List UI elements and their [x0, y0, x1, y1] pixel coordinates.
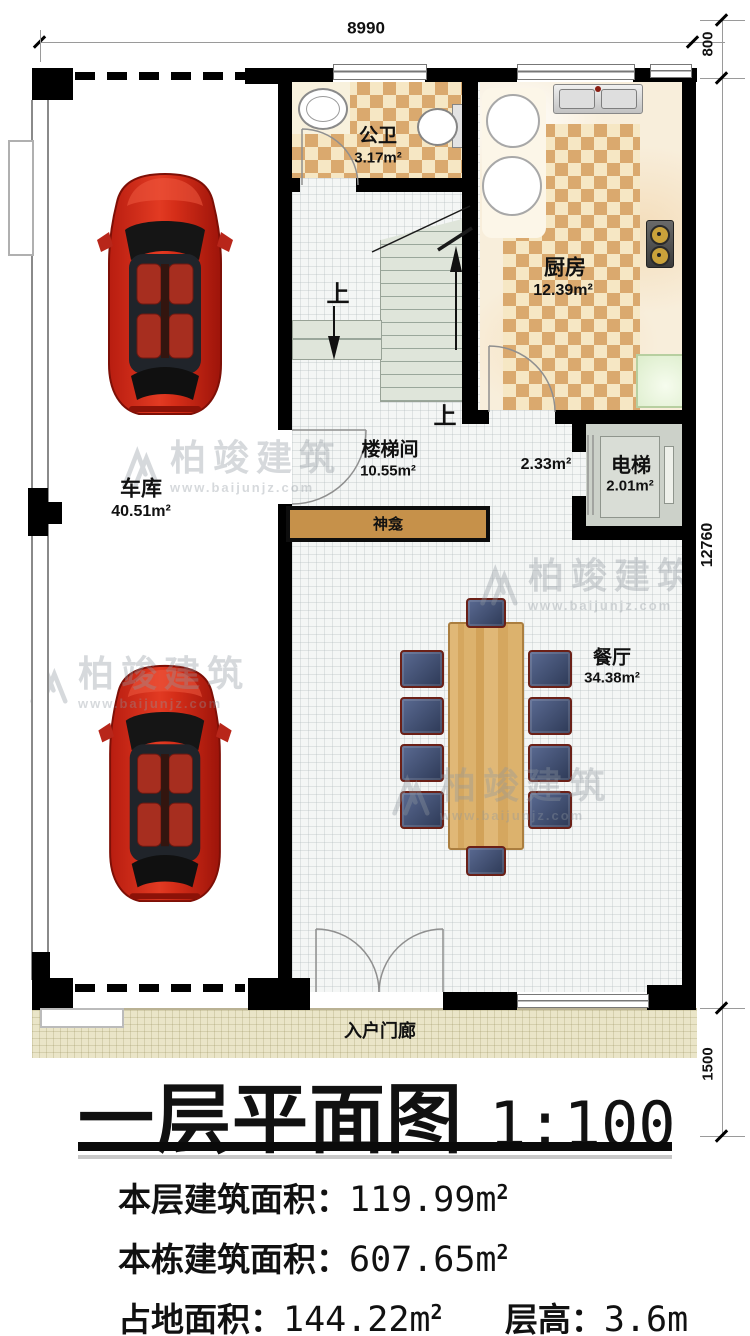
stat-label: 占地面积：	[118, 1301, 283, 1336]
stat-value: 144.22m	[283, 1300, 431, 1336]
stat-label: 本层建筑面积：	[118, 1181, 349, 1218]
dimension-line-top	[40, 42, 725, 43]
title-underline-shadow	[78, 1155, 672, 1159]
stat-label: 本栋建筑面积：	[118, 1241, 349, 1278]
kitchen-round-basin-2	[482, 156, 542, 216]
dining-chair	[528, 650, 572, 688]
stove-burner-1	[650, 225, 670, 245]
wall	[647, 985, 696, 1010]
room-area-elevator: 2.01m²	[606, 479, 654, 494]
room-label-stairwell: 楼梯间	[361, 441, 418, 460]
entry-step	[40, 1008, 124, 1028]
stair-up-label: 上	[434, 405, 457, 428]
sink-basin-left	[559, 89, 595, 109]
bathroom-sink	[298, 88, 348, 130]
watermark-url: www.baijunjz.com	[170, 480, 342, 495]
shrine-cabinet: 神龛	[286, 506, 490, 542]
room-area-garage: 40.51m²	[111, 504, 171, 520]
title-underline	[78, 1142, 672, 1151]
stair-up-label: 上	[327, 283, 350, 306]
watermark: 柏竣建筑 www.baijunjz.com	[28, 656, 250, 711]
window	[650, 64, 692, 78]
dining-chair	[400, 650, 444, 688]
garage-door-dashed	[75, 72, 245, 80]
toilet-bowl	[417, 108, 458, 146]
room-label-elevator: 电梯	[611, 456, 651, 476]
fridge	[636, 354, 686, 408]
watermark-brand: 柏竣建筑	[528, 558, 700, 594]
page-title: 一层平面图	[78, 1058, 463, 1168]
wall	[278, 504, 292, 980]
window	[517, 64, 635, 80]
stair-landing	[292, 320, 382, 360]
stat-sup: 2	[431, 1300, 443, 1324]
wall	[443, 992, 517, 1010]
watermark: 柏竣建筑 www.baijunjz.com	[478, 558, 700, 613]
kitchen-round-basin-1	[486, 94, 540, 148]
dimension-right-top: 800	[700, 31, 717, 56]
wall	[462, 68, 478, 424]
stat-floor-area: 本层建筑面积：119.99m2	[118, 1166, 688, 1226]
car-top-view	[95, 168, 235, 418]
kitchen-double-sink	[553, 84, 643, 114]
stove-burner-2	[650, 246, 670, 266]
wall	[356, 178, 476, 192]
room-label-porch: 入户门廊	[344, 1022, 416, 1040]
wall	[462, 410, 489, 424]
room-area-hallway: 2.33m²	[521, 457, 572, 473]
watermark-brand: 柏竣建筑	[440, 768, 612, 804]
dimension-width: 8990	[347, 20, 385, 37]
window	[333, 64, 427, 80]
sink-basin-right	[601, 89, 637, 109]
watermark-brand: 柏竣建筑	[170, 440, 342, 476]
room-label-kitchen: 厨房	[544, 258, 586, 279]
drawing-title-row: 一层平面图 1:100	[78, 1058, 676, 1168]
stat-value: 3.6m	[604, 1300, 688, 1336]
dining-chair	[528, 697, 572, 735]
wall	[32, 68, 73, 100]
shrine-label: 神龛	[373, 517, 403, 532]
room-label-bathroom: 公卫	[359, 127, 397, 146]
watermark-url: www.baijunjz.com	[440, 808, 612, 823]
stat-label: 层高：	[505, 1301, 604, 1336]
room-area-kitchen: 12.39m²	[533, 283, 593, 299]
stair-flight	[380, 218, 466, 402]
stat-value: 607.65m	[349, 1240, 497, 1280]
stat-value: 119.99m	[349, 1180, 497, 1220]
dimension-right-bottom: 1500	[700, 1047, 717, 1080]
watermark-url: www.baijunjz.com	[78, 696, 250, 711]
dining-chair	[466, 846, 506, 876]
dining-chair	[400, 697, 444, 735]
room-area-bathroom: 3.17m²	[354, 151, 402, 166]
extension-line	[40, 30, 41, 62]
room-area-stairwell: 10.55m²	[360, 464, 416, 479]
dimension-line-right	[722, 20, 723, 1136]
wall-pier	[28, 488, 48, 536]
stats-block: 本层建筑面积：119.99m2 本栋建筑面积：607.65m2 占地面积：144…	[118, 1166, 688, 1336]
stat-sup: 2	[497, 1180, 509, 1204]
wall	[248, 978, 310, 1010]
room-label-garage: 车库	[120, 479, 162, 500]
wall	[270, 68, 333, 82]
garage-door-dashed	[75, 984, 245, 992]
elevator-counterweight	[664, 446, 674, 504]
watermark-url: www.baijunjz.com	[528, 598, 700, 613]
wall	[572, 424, 586, 452]
room-area-dining: 34.38m²	[584, 671, 640, 686]
watermark-brand: 柏竣建筑	[78, 656, 250, 692]
stat-footprint-and-height: 占地面积：144.22m2 层高：3.6m	[118, 1286, 688, 1336]
sink-faucet	[595, 86, 601, 92]
watermark-logo-icon	[390, 773, 430, 819]
wall	[32, 978, 73, 1010]
dimension-right-middle: 12760	[699, 523, 717, 568]
room-label-dining: 餐厅	[593, 649, 631, 668]
wall-pier	[48, 502, 62, 524]
gas-stove	[646, 220, 674, 268]
wall	[292, 178, 300, 192]
watermark: 柏竣建筑 www.baijunjz.com	[390, 768, 612, 823]
wall	[278, 82, 292, 430]
exterior-pilaster	[8, 140, 34, 256]
stat-building-area: 本栋建筑面积：607.65m2	[118, 1226, 688, 1286]
window	[517, 994, 649, 1008]
watermark-logo-icon	[478, 563, 518, 609]
stat-sup: 2	[497, 1240, 509, 1264]
wall	[572, 526, 696, 540]
wall	[555, 410, 696, 424]
floor-plan-page: 柏竣建筑 www.baijunjz.com 柏竣建筑 www.baijunjz.…	[0, 0, 750, 1336]
